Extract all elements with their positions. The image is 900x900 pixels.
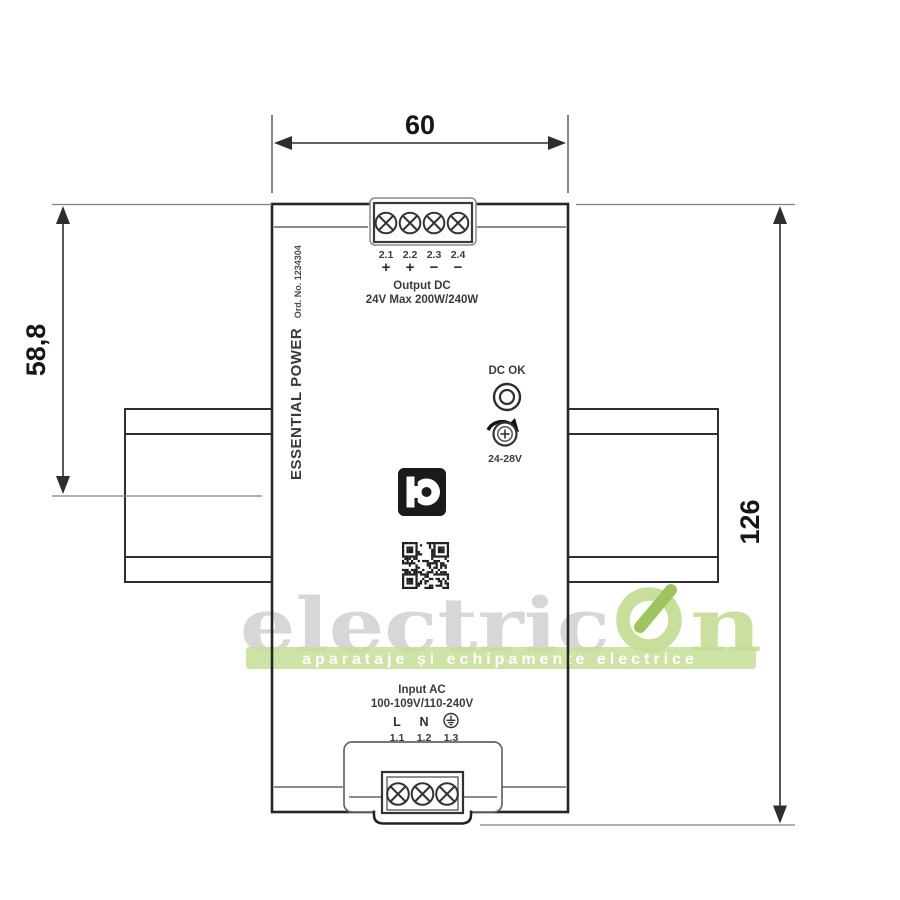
input-terminal-block bbox=[382, 772, 463, 813]
dimension-value-rail-offset: 58,8 bbox=[21, 324, 51, 377]
input-title: Input AC bbox=[398, 684, 445, 696]
power-button-icon bbox=[623, 590, 675, 646]
power-supply-dimension-drawing: electric n aparataje și echipamente elec… bbox=[0, 0, 900, 900]
output-terminal-block bbox=[370, 198, 476, 245]
output-rating: 24V Max 200W/240W bbox=[366, 294, 479, 306]
dc-ok-label: DC OK bbox=[488, 365, 526, 377]
input-rating: 100-109V/110-240V bbox=[371, 698, 474, 710]
dimension-top-width: 60 bbox=[272, 110, 568, 193]
polarity-sign: + bbox=[406, 259, 415, 276]
polarity-sign: − bbox=[430, 259, 439, 276]
watermark-tagline: aparataje și echipamente electrice bbox=[302, 651, 698, 668]
technical-drawing-page: electric n aparataje și echipamente elec… bbox=[0, 0, 900, 900]
dimension-value-height: 126 bbox=[735, 499, 765, 544]
polarity-sign: + bbox=[382, 259, 391, 276]
din-rail-right bbox=[568, 409, 718, 582]
neutral-terminal-label: N bbox=[419, 715, 428, 729]
line-terminal-label: L bbox=[393, 715, 401, 729]
phoenix-contact-logo-icon bbox=[398, 468, 446, 516]
output-title: Output DC bbox=[393, 280, 450, 292]
polarity-sign: − bbox=[454, 259, 463, 276]
watermark-electricon: electric n aparataje și echipamente elec… bbox=[240, 583, 762, 669]
pot-range-label: 24-28V bbox=[488, 453, 522, 465]
dimension-value-width: 60 bbox=[405, 110, 435, 140]
